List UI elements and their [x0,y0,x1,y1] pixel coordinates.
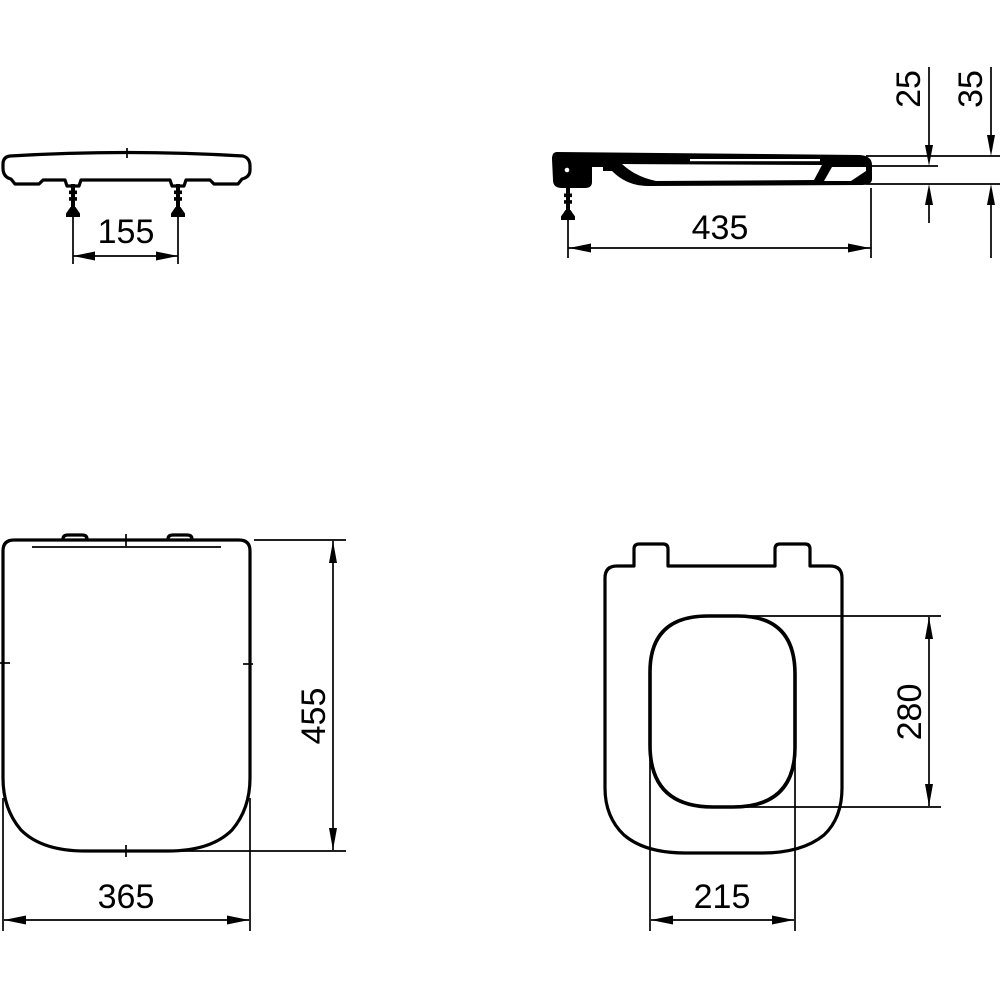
dim-opening-depth: 280 [891,617,933,806]
dim-label-hinge-spacing: 155 [98,213,155,251]
front-view: 155 [3,148,250,264]
dim-label-cover-width: 365 [98,878,155,916]
arrow-left-icon [73,252,95,261]
cover-outline [3,540,250,851]
side-view: 435 25 35 [552,67,1000,258]
dim-label-ring-thickness: 25 [890,70,928,108]
ring-plan-view: 280 215 [605,544,941,931]
arrow-right-icon [156,252,178,261]
dim-label-total-height: 35 [952,70,990,108]
dim-opening-width: 215 [651,878,794,925]
dim-label-seat-length: 435 [692,209,749,247]
hinge-pin-right [171,184,185,264]
arrow-up-icon [925,184,933,205]
dim-seat-length: 435 [568,188,871,258]
arrow-up-icon [987,184,995,205]
cover-plan-view: 455 365 [0,534,346,931]
dim-label-opening-width: 215 [694,878,751,916]
dim-ring-thickness: 25 [890,67,933,223]
arrow-left-icon [4,916,26,925]
arrow-down-icon [987,135,995,156]
hinge-pin-left [66,184,80,264]
side-seat-recess [622,164,822,181]
arrow-down-icon [925,784,933,806]
dim-label-cover-depth: 455 [295,688,333,745]
toilet-seat-technical-drawing: 155 435 2 [0,0,1000,1000]
dim-label-opening-depth: 280 [891,684,929,741]
arrow-up-icon [329,541,337,563]
side-hinge-hole [565,168,570,173]
side-seat-highlight [690,159,820,161]
dim-total-height: 35 [952,67,995,258]
technical-drawing-page: 155 435 2 [0,0,1000,1000]
dim-hinge-spacing: 155 [73,213,178,261]
arrow-right-icon [848,244,870,253]
arrow-left-icon [651,916,673,925]
arrow-right-icon [227,916,249,925]
arrow-up-icon [925,617,933,639]
arrow-right-icon [772,916,794,925]
arrow-left-icon [569,244,591,253]
arrow-down-icon [329,828,337,850]
